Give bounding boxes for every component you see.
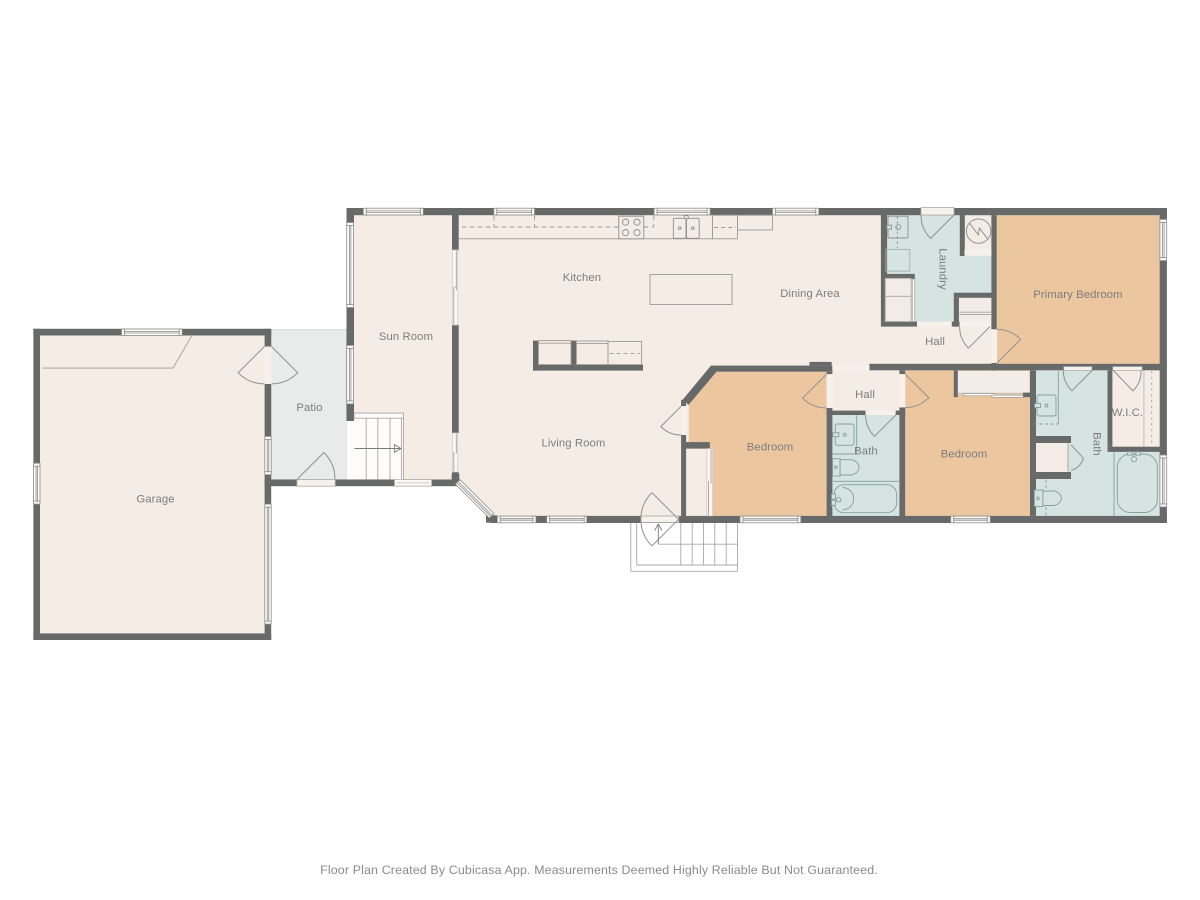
svg-text:Dining Area: Dining Area <box>780 288 840 300</box>
svg-text:Sun Room: Sun Room <box>379 331 433 343</box>
svg-text:Floor Plan Created By Cubicasa: Floor Plan Created By Cubicasa App. Meas… <box>320 863 878 877</box>
svg-text:Hall: Hall <box>855 389 875 401</box>
svg-text:Living Room: Living Room <box>542 437 606 449</box>
svg-text:Garage: Garage <box>136 494 174 506</box>
svg-text:Primary Bedroom: Primary Bedroom <box>1033 289 1122 301</box>
svg-text:W.I.C.: W.I.C. <box>1112 407 1143 419</box>
svg-text:Bedroom: Bedroom <box>747 441 794 453</box>
svg-text:Bath: Bath <box>854 446 878 458</box>
svg-text:Hall: Hall <box>925 336 945 348</box>
svg-text:Bedroom: Bedroom <box>941 448 988 460</box>
svg-text:Patio: Patio <box>296 402 322 414</box>
svg-text:Bath: Bath <box>1091 432 1103 456</box>
svg-text:Kitchen: Kitchen <box>563 272 601 284</box>
svg-text:Laundry: Laundry <box>937 248 949 290</box>
